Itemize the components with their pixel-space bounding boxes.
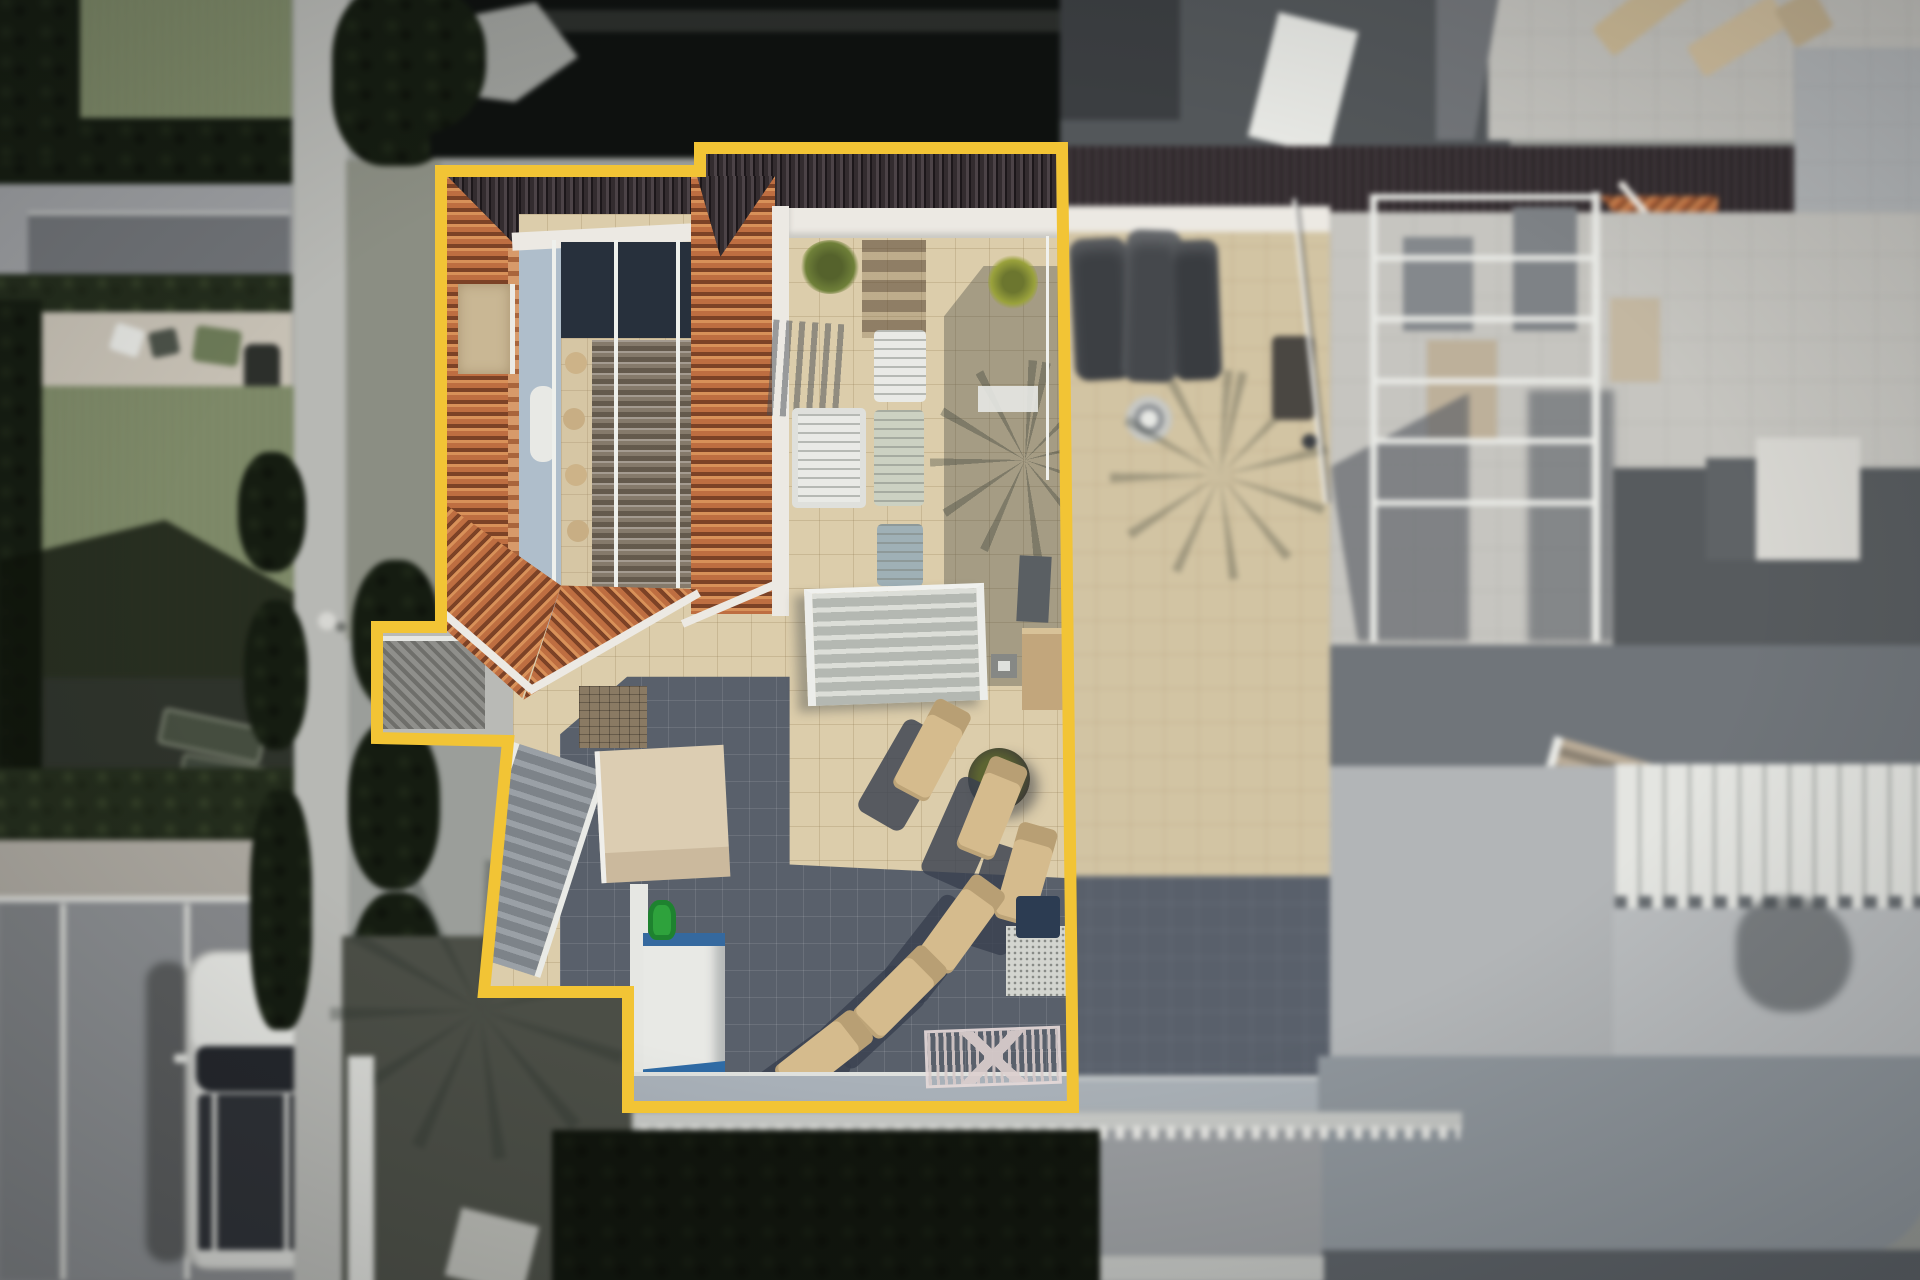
courtyard-chair-3 bbox=[565, 464, 587, 486]
neighbour-parapet bbox=[1062, 206, 1330, 232]
covered-furniture-3 bbox=[1170, 239, 1223, 381]
aerial-photo bbox=[0, 0, 1920, 1280]
car-roof-rail-l bbox=[212, 1094, 217, 1252]
path-tree-1 bbox=[238, 452, 306, 572]
vertical-lounger-sage bbox=[874, 410, 924, 506]
lounger-shadow-column bbox=[862, 240, 926, 338]
pergola-shadow-2 bbox=[1528, 390, 1614, 642]
car-shadow bbox=[146, 962, 190, 1262]
ac-unit bbox=[1016, 555, 1051, 623]
lamp-post bbox=[318, 612, 336, 630]
white-louvre-roof bbox=[1613, 764, 1920, 910]
driveway bbox=[1318, 1056, 1920, 1258]
pergola-beam-5 bbox=[1370, 438, 1600, 444]
light-fixture bbox=[991, 654, 1017, 678]
garage-roof-inner bbox=[28, 212, 290, 277]
courtyard-chair-4 bbox=[567, 520, 589, 542]
paving-dot bbox=[1302, 434, 1317, 449]
bottom-white-strip bbox=[1062, 1256, 1324, 1280]
white-side-table bbox=[978, 386, 1038, 412]
right-white-boxes bbox=[1756, 438, 1860, 560]
path-tree-2 bbox=[244, 600, 308, 750]
pergola-beam-1 bbox=[1370, 194, 1600, 200]
garden-top-wall bbox=[520, 10, 1080, 32]
skylight-mullion-1 bbox=[552, 240, 556, 588]
patio-lounger bbox=[192, 325, 243, 367]
neighbour-lower-terrace bbox=[1062, 876, 1330, 1082]
outdoor-kitchen-cover bbox=[1016, 896, 1060, 938]
pergola-beam-6 bbox=[1370, 500, 1600, 506]
mid-terrace-stairs bbox=[804, 583, 988, 706]
car-rear bbox=[198, 1250, 304, 1266]
pergola-beam-3 bbox=[1370, 316, 1600, 322]
tree-over-shed bbox=[336, 0, 486, 134]
tan-storage-box bbox=[1022, 628, 1070, 710]
path-tree-3 bbox=[250, 790, 312, 1030]
right-lower-paving-l bbox=[1330, 766, 1615, 1062]
car-windshield bbox=[196, 1046, 306, 1092]
armchair-shadow bbox=[767, 319, 850, 420]
pergola-beam-4 bbox=[1370, 378, 1600, 384]
storage-box bbox=[643, 933, 725, 1085]
neighbour-flat-roof-dark-corner bbox=[1060, 0, 1180, 120]
skylight-mullion-2 bbox=[614, 240, 618, 588]
object-shadow-blob bbox=[1736, 896, 1852, 1012]
driveway-dark-strip bbox=[1318, 1250, 1920, 1280]
stair-landing bbox=[595, 745, 731, 884]
stone-clad-wall bbox=[579, 686, 647, 748]
courtyard-chair-1 bbox=[565, 352, 587, 374]
car-roof-rail-r bbox=[284, 1094, 289, 1252]
chimney-box bbox=[458, 284, 515, 374]
neighbour-walkway bbox=[1062, 1076, 1330, 1111]
terrace-parapet bbox=[789, 208, 1079, 238]
clothes-airer bbox=[924, 1026, 1062, 1089]
parapet-rail-line bbox=[1046, 236, 1049, 480]
white-armchair bbox=[792, 408, 866, 508]
plant-pot-a bbox=[800, 240, 860, 294]
skylight-mullion-3 bbox=[676, 240, 680, 588]
right-mid-grey-band bbox=[1330, 645, 1920, 767]
plant-pot-b bbox=[988, 254, 1038, 310]
white-wall-sliver bbox=[348, 1056, 374, 1280]
courtyard-upper-dark bbox=[561, 242, 691, 338]
vertical-lounger-white bbox=[874, 330, 926, 402]
far-right-tile-band bbox=[1794, 48, 1920, 232]
vertical-lounger-blue bbox=[877, 524, 923, 586]
pergola-beam-2 bbox=[1370, 255, 1600, 261]
shade-sail-2 bbox=[1513, 207, 1577, 331]
pergola-post-l bbox=[1370, 194, 1377, 642]
watering-can bbox=[648, 900, 676, 940]
deck-box-2 bbox=[1610, 298, 1660, 382]
parking-line-v1 bbox=[60, 904, 66, 1280]
hedge-mid bbox=[0, 274, 292, 316]
car-mirror-l bbox=[174, 1054, 188, 1063]
corner-trees bbox=[0, 0, 80, 160]
villa-side-tree-2 bbox=[348, 720, 440, 890]
bottom-hedge-shade bbox=[552, 1130, 1100, 1280]
courtyard-chair-2 bbox=[563, 408, 585, 430]
parking-bay-1 bbox=[0, 904, 60, 1280]
roof-east-wing bbox=[691, 176, 775, 614]
